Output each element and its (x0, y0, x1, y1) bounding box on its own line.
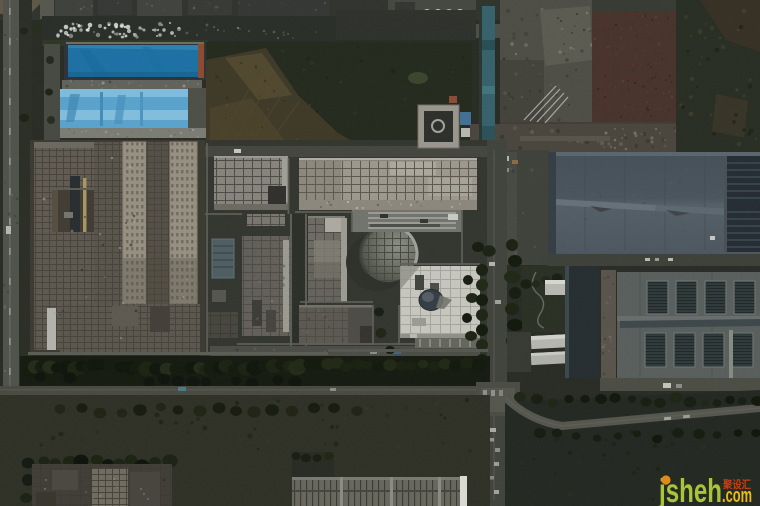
svg-text:聚设汇: 聚设汇 (722, 478, 751, 491)
